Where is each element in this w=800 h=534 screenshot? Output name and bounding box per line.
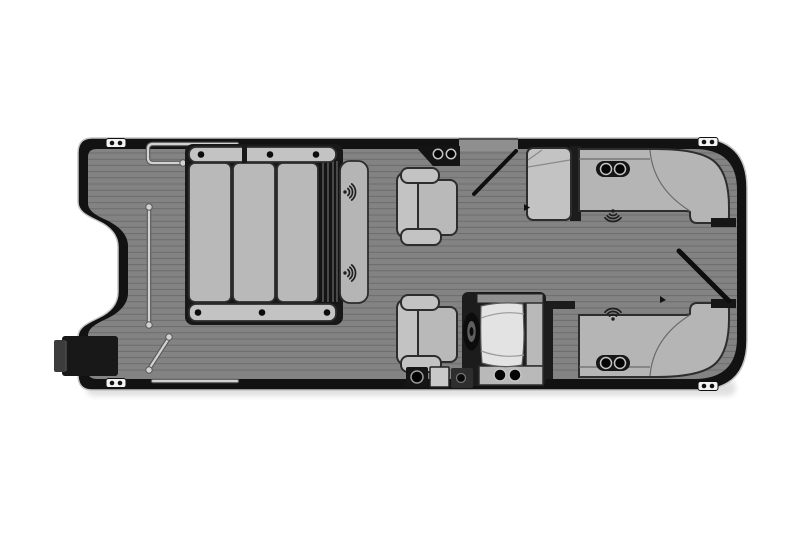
lounger-hinge-panel [319, 159, 339, 304]
lounger-cushion-1 [189, 163, 231, 302]
deck-storage-boxes [406, 367, 473, 388]
port-stern-bench-cupholders [615, 358, 626, 369]
headrest-seam [242, 146, 247, 163]
jump-seat [524, 146, 581, 221]
helm-console-cupholders [509, 369, 521, 381]
cleat-bolt [110, 141, 115, 146]
port-bow-rail-ball [146, 322, 152, 328]
cleat [698, 138, 718, 147]
console-top-cap [477, 294, 543, 303]
cleat-bolt [702, 140, 707, 145]
speaker-dot [343, 190, 346, 193]
cleat [698, 382, 718, 391]
console-side-panel [526, 303, 543, 366]
starboard-stern-bench-cupholders [615, 164, 626, 175]
gate-opening [459, 138, 518, 151]
recliner-chair-forward [397, 168, 457, 245]
outboard-motor [54, 336, 118, 376]
cleat-bolt [710, 384, 715, 389]
cleat-bolt [118, 381, 123, 386]
lounger-backrest [340, 161, 368, 303]
cleat-bolt [118, 141, 123, 146]
windshield [481, 303, 524, 367]
bow-lounger [185, 144, 368, 325]
speaker-dot [343, 271, 346, 274]
speaker-dot [611, 317, 614, 320]
chair-armrest [401, 295, 439, 310]
cleat-bolt [710, 140, 715, 145]
floorplan-svg [0, 0, 800, 534]
bow-corner-rail-ball [146, 367, 152, 373]
headrest-bolt [198, 151, 205, 158]
port-stern-bench-cupholders [601, 358, 612, 369]
cleat [106, 139, 126, 148]
bow-corner-rail-ball [166, 334, 172, 340]
headrest-bolt [313, 151, 320, 158]
headrest-bolt [267, 151, 274, 158]
starboard-stern-bench-cupholders [601, 164, 612, 175]
storage-box-lid [430, 367, 449, 387]
speaker-dot [611, 209, 614, 212]
motor-cowl [54, 340, 66, 372]
steering-wheel-hub [470, 327, 474, 336]
chair-armrest [401, 168, 439, 183]
lounger-cushion-3 [277, 163, 318, 302]
storage-latch [411, 371, 423, 383]
captain-chair [397, 295, 457, 372]
storage-latch [457, 374, 466, 383]
port-bow-rail-ball [146, 204, 152, 210]
helm-console-cupholders [494, 369, 506, 381]
chair-armrest [401, 229, 441, 245]
cleat-bolt [702, 384, 707, 389]
bench-end-cap [711, 299, 736, 308]
jump-seat-cushion [527, 148, 571, 220]
headrest-bolt [324, 309, 331, 316]
bow-gate-cupholders [433, 149, 442, 158]
cleat [106, 379, 126, 388]
bow-gate-cupholders [446, 149, 455, 158]
cleat-bolt [110, 381, 115, 386]
bench-end-cap [711, 218, 736, 227]
pontoon-floorplan-image [0, 0, 800, 534]
headrest-bolt [259, 309, 266, 316]
motor-body [62, 336, 118, 376]
headrest-bolt [195, 309, 202, 316]
lounger-cushion-2 [233, 163, 275, 302]
bench-cushion [579, 149, 729, 223]
